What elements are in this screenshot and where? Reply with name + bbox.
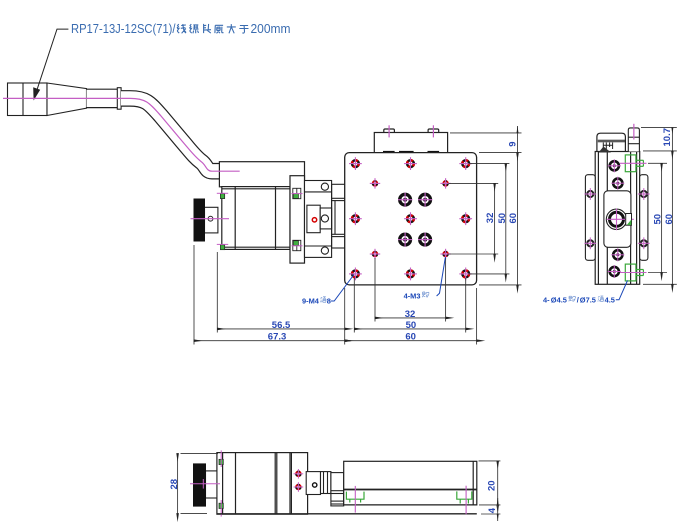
svg-text:RP17-13J-12SC(71)/: RP17-13J-12SC(71)/ bbox=[71, 22, 176, 36]
svg-text:50: 50 bbox=[497, 213, 508, 224]
svg-text:/: / bbox=[577, 296, 579, 305]
svg-text:4-: 4- bbox=[543, 296, 550, 305]
svg-text:60: 60 bbox=[664, 214, 675, 225]
svg-text:60: 60 bbox=[405, 332, 416, 343]
svg-text:32: 32 bbox=[485, 213, 496, 224]
svg-text:4: 4 bbox=[487, 507, 498, 513]
svg-text:200mm: 200mm bbox=[251, 22, 291, 36]
svg-text:32: 32 bbox=[405, 309, 416, 320]
svg-text:28: 28 bbox=[169, 479, 180, 490]
svg-text:9: 9 bbox=[508, 142, 519, 147]
svg-text:4.5: 4.5 bbox=[605, 296, 615, 305]
svg-text:56.5: 56.5 bbox=[272, 320, 291, 331]
svg-text:50: 50 bbox=[406, 320, 417, 331]
svg-text:4.5: 4.5 bbox=[557, 296, 567, 305]
svg-text:4-M3: 4-M3 bbox=[404, 291, 421, 300]
svg-text:10.7: 10.7 bbox=[662, 128, 673, 147]
svg-text:67.3: 67.3 bbox=[268, 332, 287, 343]
svg-text:9-M4: 9-M4 bbox=[302, 296, 320, 305]
svg-text:8: 8 bbox=[327, 296, 331, 305]
svg-text:7.5: 7.5 bbox=[586, 296, 596, 305]
svg-text:20: 20 bbox=[487, 480, 498, 491]
svg-text:50: 50 bbox=[653, 214, 664, 225]
svg-text:60: 60 bbox=[508, 213, 519, 224]
